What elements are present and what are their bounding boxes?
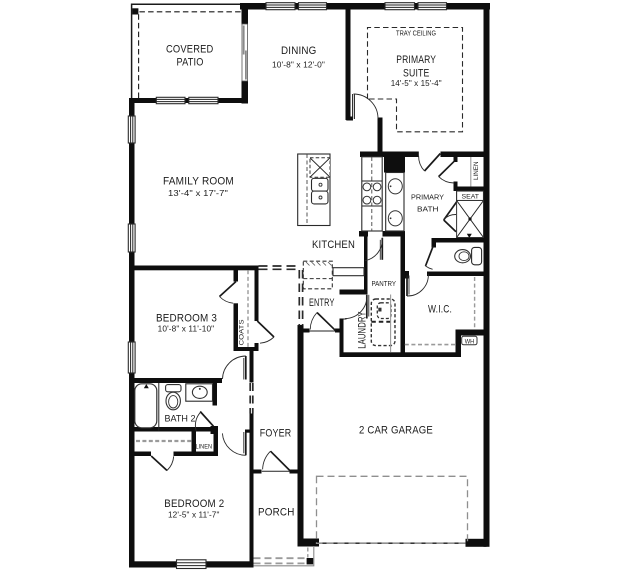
svg-text:13'-4" x 17'-7": 13'-4" x 17'-7" <box>168 189 228 198</box>
svg-text:LINEN: LINEN <box>473 162 480 181</box>
svg-text:10'-8" x 12'-0": 10'-8" x 12'-0" <box>272 60 325 69</box>
svg-text:14'-5" x 15'-4": 14'-5" x 15'-4" <box>391 79 442 88</box>
svg-text:LAUNDRY: LAUNDRY <box>357 311 369 349</box>
svg-text:PRIMARY: PRIMARY <box>396 54 436 66</box>
svg-text:LINEN: LINEN <box>196 444 213 451</box>
svg-text:ENTRY: ENTRY <box>309 297 335 309</box>
svg-text:SEAT: SEAT <box>462 194 480 201</box>
svg-text:FOYER: FOYER <box>260 427 292 439</box>
svg-text:PANTRY: PANTRY <box>372 281 397 288</box>
svg-text:2 CAR GARAGE: 2 CAR GARAGE <box>359 424 433 436</box>
svg-text:KITCHEN: KITCHEN <box>312 239 355 251</box>
svg-text:TRAY CEILING: TRAY CEILING <box>396 30 436 37</box>
svg-text:BATH 2: BATH 2 <box>165 413 196 424</box>
svg-text:PRIMARY: PRIMARY <box>411 195 444 202</box>
svg-text:W.I.C.: W.I.C. <box>428 304 452 316</box>
svg-text:BATH: BATH <box>417 207 439 214</box>
svg-text:BEDROOM 3: BEDROOM 3 <box>156 313 217 325</box>
svg-text:10'-8" x 11'-10": 10'-8" x 11'-10" <box>158 325 215 334</box>
svg-text:FAMILY ROOM: FAMILY ROOM <box>163 176 234 188</box>
svg-text:COVERED: COVERED <box>166 44 214 56</box>
svg-text:COATS: COATS <box>239 320 246 346</box>
svg-text:12'-5" x 11'-7": 12'-5" x 11'-7" <box>168 510 220 519</box>
svg-text:PORCH: PORCH <box>258 506 295 518</box>
svg-text:DINING: DINING <box>281 45 317 57</box>
svg-text:WH: WH <box>465 338 475 345</box>
svg-text:PATIO: PATIO <box>177 57 204 69</box>
svg-text:BEDROOM 2: BEDROOM 2 <box>164 498 224 510</box>
